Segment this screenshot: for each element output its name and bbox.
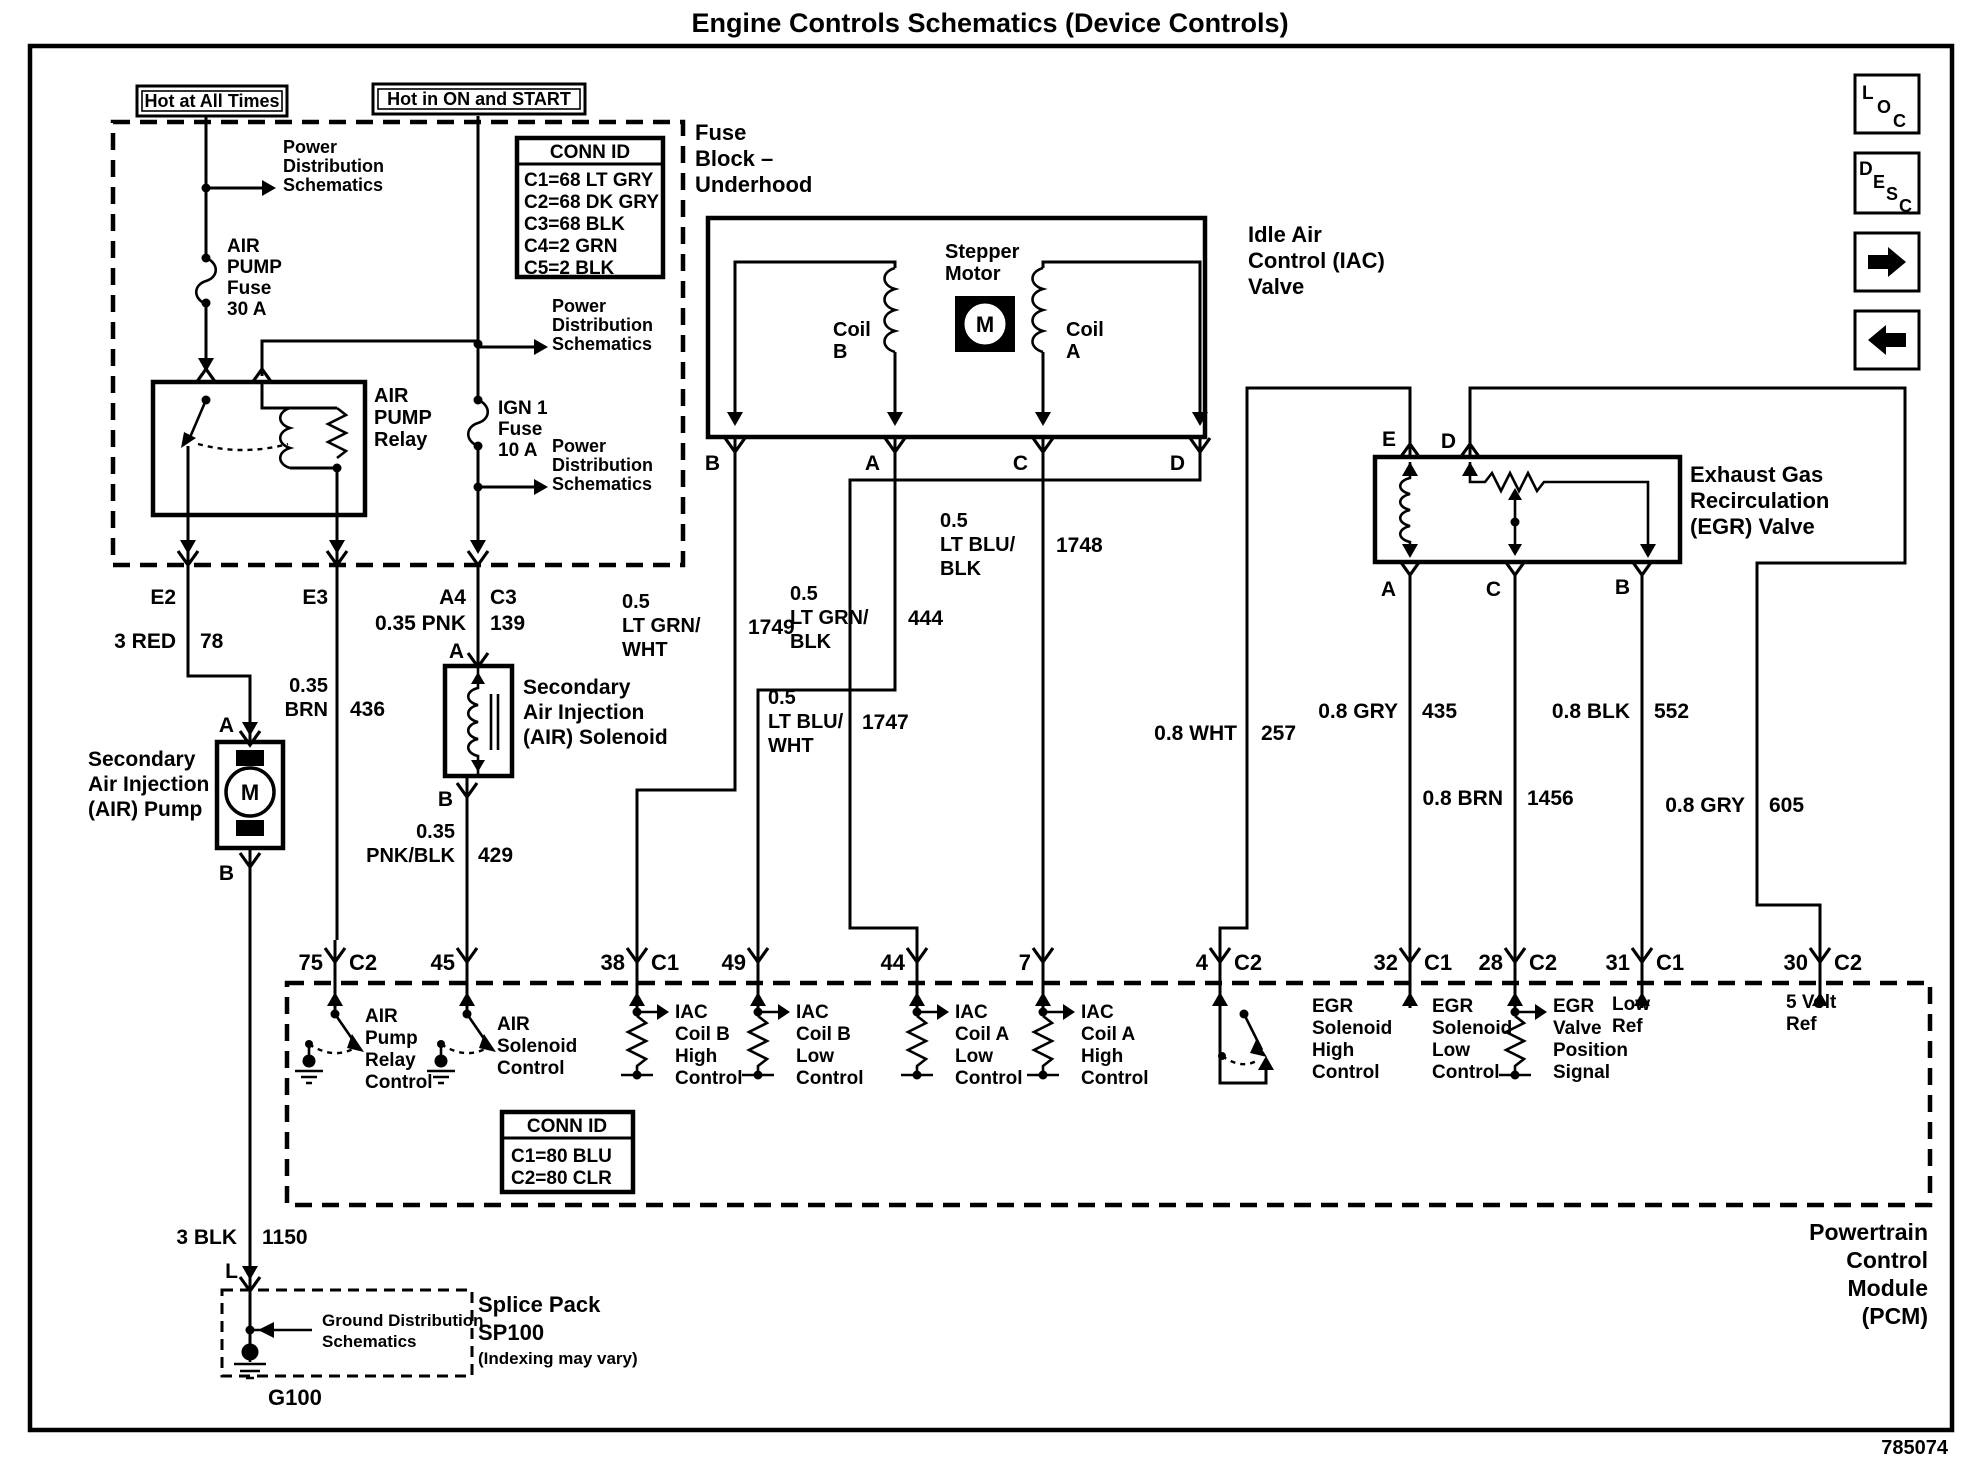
iac-valve-label: Idle AirControl (IAC)Valve: [1248, 222, 1385, 299]
pin-c3: C3: [490, 586, 517, 609]
air-pump-fuse: AIRPUMPFuse30 A: [196, 236, 282, 320]
iac-pin-a: A: [865, 452, 880, 475]
fuse-block-label: FuseBlock –Underhood: [695, 120, 812, 197]
pcm-pin-75: 75 C2 AIRPumpRelayControl: [295, 940, 433, 1093]
wire-257-path: [1220, 388, 1410, 940]
relay-coil-bottom-rail: [290, 468, 337, 515]
egr-valve-label: Exhaust GasRecirculation(EGR) Valve: [1690, 462, 1829, 539]
pin-connector-id: C2: [1834, 950, 1862, 975]
pin-a4: A4: [439, 586, 466, 609]
conn-id-title: CONN ID: [527, 1116, 607, 1137]
pcm-pin-49: 49 IACCoil BLowControl: [722, 940, 864, 1089]
ign1-fuse-label: IGN 1Fuse10 A: [498, 398, 548, 461]
conn-id-row: C4=2 GRN: [524, 236, 617, 257]
wire-435-circuit: 435: [1422, 700, 1457, 723]
wire-605-color: 0.8 GRY: [1665, 794, 1745, 817]
ground-dist-ref: Ground DistributionSchematics: [322, 1311, 483, 1351]
wire-605-circuit: 605: [1769, 794, 1804, 817]
pin-number: 28: [1479, 950, 1503, 975]
pin-number: 75: [299, 950, 323, 975]
wire-1150-color: 3 BLK: [176, 1226, 237, 1249]
ground-icon: [295, 1071, 323, 1083]
pin-number: 45: [431, 950, 455, 975]
pcm-label: PowertrainControlModule(PCM): [1809, 1219, 1928, 1329]
pin-function: AIRSolenoidControl: [497, 1014, 577, 1079]
pin-function: IACCoil BHighControl: [675, 1002, 743, 1089]
egr-position-sensor: [1470, 462, 1648, 548]
pin-number: 30: [1784, 950, 1808, 975]
splice-pin-l: L: [225, 1260, 238, 1283]
desc-letter-e: E: [1873, 172, 1885, 192]
stepper-motor-label: StepperMotor: [945, 241, 1020, 285]
egr-pin-e: E: [1382, 428, 1396, 451]
wire-436-circuit: 436: [350, 698, 385, 721]
conn-id-row: C5=2 BLK: [524, 258, 615, 279]
power-dist-ref-2: PowerDistributionSchematics: [552, 296, 653, 354]
wire-435-color: 0.8 GRY: [1318, 700, 1398, 723]
driver-switch: [1244, 1014, 1262, 1050]
stepper-motor-icon: M: [955, 296, 1015, 352]
schematic-canvas: Engine Controls Schematics (Device Contr…: [0, 0, 1980, 1472]
pin-connector-id: C2: [1529, 950, 1557, 975]
wire-1749-circuit: 1749: [748, 616, 795, 639]
wire-1456-color: 0.8 BRN: [1422, 787, 1503, 810]
wire-1456-circuit: 1456: [1527, 787, 1574, 810]
relay-coil-top-rail: [262, 382, 337, 408]
loc-letter-l: L: [1862, 83, 1874, 104]
wire-1748-circuit: 1748: [1056, 534, 1103, 557]
pin-function: IACCoil BLowControl: [796, 1002, 864, 1089]
wire-257-circuit: 257: [1261, 722, 1296, 745]
pin-e2: E2: [150, 586, 176, 609]
pin-connector-id: C2: [349, 950, 377, 975]
pin-function: IACCoil ALowControl: [955, 1002, 1023, 1089]
air-pump-relay-label: AIRPUMPRelay: [374, 385, 432, 451]
wire-1150-circuit: 1150: [262, 1226, 308, 1249]
pin-e3: E3: [302, 586, 328, 609]
figure-number: 785074: [1881, 1437, 1949, 1459]
iac-coil-b-wire: [735, 262, 895, 420]
desc-letter-d: D: [1859, 159, 1873, 180]
g100-ground-icon: [234, 1344, 266, 1379]
wire-1747-circuit: 1747: [862, 711, 909, 734]
pcm-conn-id: CONN ID C1=80 BLU C2=80 CLR: [502, 1112, 633, 1192]
next-button[interactable]: [1855, 233, 1919, 291]
pin-function: AIRPumpRelayControl: [365, 1006, 433, 1093]
relay-coil-feed-wire: [262, 341, 478, 376]
pin-function: EGRSolenoidLowControl: [1432, 996, 1512, 1083]
power-dist-ref-3: PowerDistributionSchematics: [552, 436, 653, 494]
pin-function: LowRef: [1612, 994, 1650, 1037]
egr-pin-b: B: [1615, 576, 1630, 599]
pump-pin-a: A: [219, 714, 234, 737]
wire-1748-color: 0.5LT BLU/BLK: [940, 510, 1016, 580]
schematic-page: Engine Controls Schematics (Device Contr…: [0, 0, 1980, 1472]
egr-pin-d: D: [1441, 430, 1456, 453]
wire-444-circuit: 444: [908, 607, 943, 630]
air-solenoid-label: SecondaryAir Injection(AIR) Solenoid: [523, 676, 668, 749]
desc-letter-s: S: [1886, 184, 1898, 204]
motor-letter: M: [976, 312, 994, 337]
splice-pack-label: Splice Pack: [478, 1292, 601, 1317]
wire-444-color: 0.5LT GRN/BLK: [790, 583, 869, 653]
wire-78-circuit: 78: [200, 630, 224, 653]
pin-function: IACCoil AHighControl: [1081, 1002, 1149, 1089]
pin-function: EGRSolenoidHighControl: [1312, 996, 1392, 1083]
wire-1749-path: [637, 437, 735, 940]
loc-letter-c: C: [1893, 111, 1906, 131]
wire-429-color: 0.35PNK/BLK: [366, 821, 455, 867]
pin-number: 31: [1606, 950, 1630, 975]
air-pump-relay: AIRPUMPRelay: [153, 369, 432, 515]
arrow-right-icon: [1868, 247, 1906, 277]
pcm-pin-connectors: [325, 948, 1830, 962]
nav-buttons: L O C D E S C: [1855, 75, 1919, 369]
wire-257-color: 0.8 WHT: [1154, 722, 1237, 745]
desc-letter-c: C: [1899, 196, 1912, 216]
pin-number: 38: [601, 950, 625, 975]
egr-pin-a: A: [1381, 578, 1396, 601]
wire-605-path: [1470, 388, 1905, 940]
hot-in-on-start-banner: Hot in ON and START: [373, 84, 585, 114]
fuse-block-conn-id: CONN ID C1=68 LT GRY C2=68 DK GRY C3=68 …: [517, 138, 663, 279]
pump-pin-b: B: [219, 862, 234, 885]
loc-letter-o: O: [1877, 97, 1891, 117]
pin-connector-id: C1: [651, 950, 679, 975]
egr-valve: Exhaust GasRecirculation(EGR) Valve E D …: [1375, 428, 1829, 601]
solenoid-pin-b: B: [438, 788, 453, 811]
hot-in-on-start-label: Hot in ON and START: [387, 89, 571, 109]
pin-connector-id: C1: [1424, 950, 1452, 975]
wire-1747-path: [850, 437, 1200, 940]
hot-at-all-times-banner: Hot at All Times: [137, 86, 287, 116]
hot-at-all-times-label: Hot at All Times: [144, 91, 279, 111]
prev-button[interactable]: [1855, 311, 1919, 369]
pin-connector-id: C1: [1656, 950, 1684, 975]
loc-button[interactable]: L O C: [1855, 75, 1919, 133]
conn-id-title: CONN ID: [550, 142, 630, 163]
pin-number: 4: [1196, 950, 1209, 975]
conn-id-row: C2=68 DK GRY: [524, 192, 659, 213]
iac-coil-b-label: CoilB: [833, 319, 871, 363]
wire-552-circuit: 552: [1654, 700, 1689, 723]
pcm-pin-44: 44 IACCoil ALowControl: [881, 940, 1023, 1089]
driver-resistor: [1034, 1016, 1052, 1075]
wire-139-color: 0.35 PNK: [375, 612, 466, 635]
relay-coil: [280, 408, 290, 468]
powertrain-control-module: PowertrainControlModule(PCM) 75 C2 AIRPu…: [287, 940, 1930, 1329]
pin-number: 49: [722, 950, 746, 975]
wire-139-circuit: 139: [490, 612, 525, 635]
driver-resistor: [628, 1016, 646, 1075]
pump-motor-letter: M: [241, 780, 259, 805]
wire-429-circuit: 429: [478, 844, 513, 867]
iac-coil-a-label: CoilA: [1066, 319, 1104, 363]
wire-552-color: 0.8 BLK: [1552, 700, 1630, 723]
conn-id-row: C3=68 BLK: [524, 214, 625, 235]
conn-id-row: C1=80 BLU: [511, 1146, 612, 1167]
secondary-air-injection-pump: 3 RED 78 A M SecondaryAir Injection(AIR)…: [88, 564, 283, 885]
pcm-pin-7: 7 IACCoil AHighControl: [1019, 940, 1149, 1089]
conn-id-row: C2=80 CLR: [511, 1168, 612, 1189]
conn-id-row: C1=68 LT GRY: [524, 170, 654, 191]
pcm-pin-4: 4 C2 EGRSolenoidHighControl: [1196, 940, 1392, 1083]
wire-436-color: 0.35BRN: [285, 675, 328, 721]
iac-pin-d: D: [1170, 452, 1185, 475]
iac-pin-b: B: [705, 452, 720, 475]
power-dist-ref-1: PowerDistributionSchematics: [283, 137, 384, 195]
pin-number: 44: [881, 950, 906, 975]
relay-resistor: [328, 408, 346, 458]
wire-78-color: 3 RED: [114, 630, 176, 653]
pin-connector-id: C2: [1234, 950, 1262, 975]
wires-to-pcm: 0.35BRN 436 0.35PNK/BLK 429 0.5LT GRN/WH…: [285, 388, 1905, 940]
driver-resistor: [749, 1016, 767, 1075]
iac-pin-connectors: [725, 438, 1210, 452]
iac-coil-b: [885, 268, 896, 352]
iac-pin-c: C: [1013, 452, 1028, 475]
desc-button[interactable]: D E S C: [1855, 153, 1919, 216]
air-pump-label: SecondaryAir Injection(AIR) Pump: [88, 748, 209, 821]
page-title: Engine Controls Schematics (Device Contr…: [691, 8, 1288, 38]
wire-1747-color: 0.5LT BLU/WHT: [768, 687, 844, 757]
pin-number: 7: [1019, 950, 1031, 975]
pump-motor-icon: M: [226, 750, 274, 836]
ign1-fuse: IGN 1Fuse10 A: [468, 396, 548, 462]
pin-number: 32: [1374, 950, 1398, 975]
pcm-pin-45: 45 AIRSolenoidControl: [427, 940, 577, 1083]
driver-resistor: [908, 1016, 926, 1075]
iac-valve: Idle AirControl (IAC)Valve StepperMotor …: [705, 218, 1385, 475]
solenoid-pin-a: A: [449, 640, 464, 663]
splice-pack-id: SP100: [478, 1320, 544, 1345]
g100-label: G100: [268, 1385, 322, 1410]
relay-switch-link: [198, 444, 288, 450]
arrow-left-icon: [1868, 325, 1906, 355]
wire-1749-color: 0.5LT GRN/WHT: [622, 591, 701, 661]
pcm-pin-31: 31 C1 LowRef: [1606, 940, 1685, 1037]
pin-function: 5 VoltRef: [1786, 992, 1837, 1035]
splice-pack-note: (Indexing may vary): [478, 1349, 638, 1368]
egr-pin-c: C: [1486, 578, 1501, 601]
iac-coil-a: [1033, 268, 1044, 352]
pcm-pin-30: 30 C2 5 VoltRef: [1784, 940, 1863, 1035]
air-pump-fuse-label: AIRPUMPFuse30 A: [227, 236, 282, 320]
